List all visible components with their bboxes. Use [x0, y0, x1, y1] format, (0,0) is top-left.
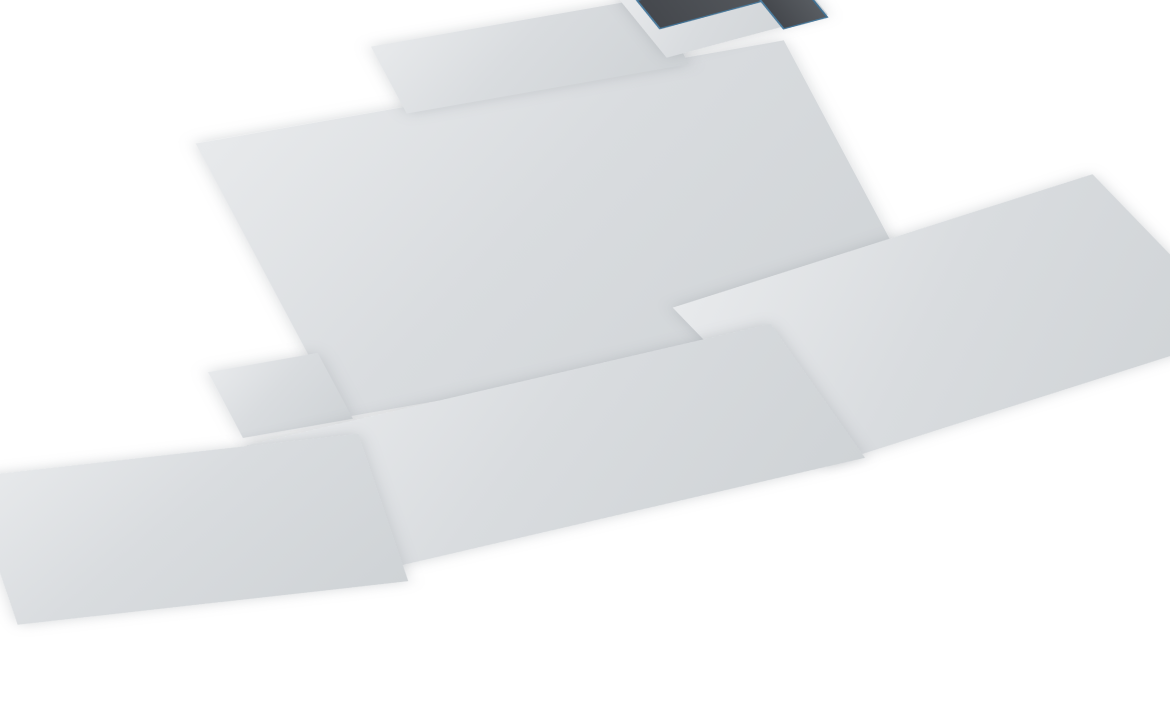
floor-slab — [371, 0, 689, 113]
floor-plan — [0, 0, 1170, 707]
entrance-ramp — [636, 0, 799, 29]
floor-slab — [673, 174, 1170, 465]
isometric-scene — [0, 0, 1170, 707]
entrance-ramp — [743, 0, 829, 29]
floor-slab — [196, 40, 930, 417]
parking-garage-map — [0, 0, 1170, 707]
floor-slab — [617, 0, 828, 57]
